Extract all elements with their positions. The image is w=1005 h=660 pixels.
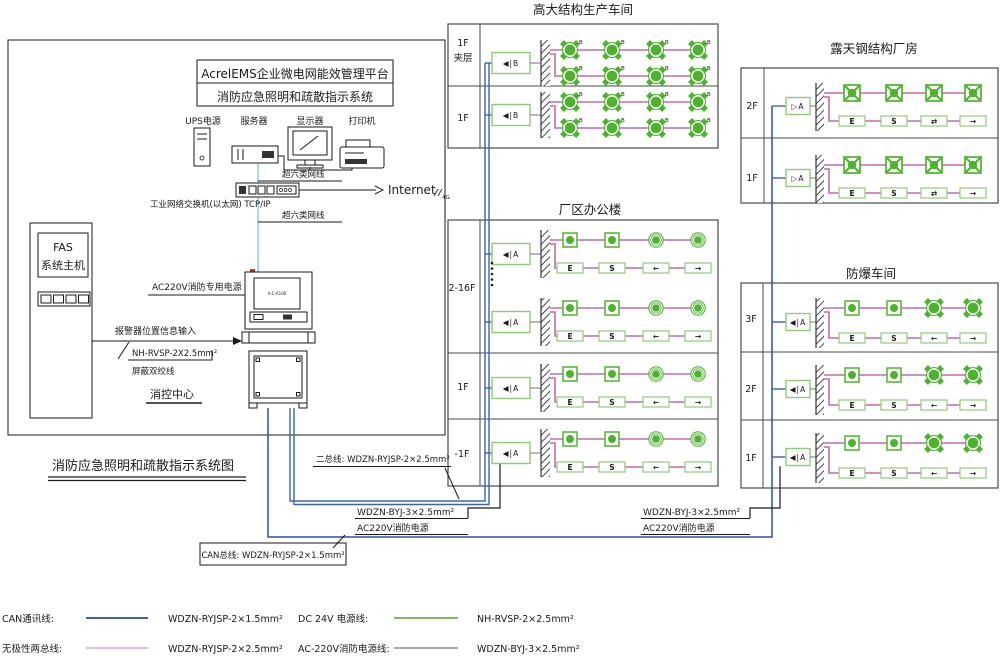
svg-text:1F: 1F [745, 453, 757, 464]
svg-text:→: → [970, 189, 976, 198]
svg-text:B: B [665, 92, 669, 98]
svg-text:▷A: ▷A [792, 174, 805, 183]
emergency-light [563, 367, 577, 381]
emergency-light [649, 367, 663, 381]
svg-text:3F: 3F [745, 314, 757, 325]
alarm-cable-note: 屏蔽双绞线 [132, 366, 175, 377]
svg-text:→: → [695, 264, 701, 273]
svg-text:S: S [891, 469, 896, 478]
can-bus-callout: CAN总线: WDZN-RYJSP-2×1.5mm² [201, 550, 344, 561]
svg-text:B: B [621, 92, 625, 98]
svg-text:←: ← [931, 469, 937, 478]
legend-label-ac220: AC-220V消防电源线: [298, 643, 390, 655]
emergency-light [605, 233, 619, 247]
switch-label: 工业网络交换机(以太网) TCP/IP [150, 199, 271, 210]
svg-text:B: B [579, 40, 583, 46]
wall-hatch [541, 92, 550, 138]
emergency-light [649, 301, 663, 315]
svg-text:◀|A: ◀|A [503, 384, 519, 393]
svg-text:B: B [707, 118, 711, 124]
svg-text:B: B [621, 66, 625, 72]
svg-text:▷A: ▷A [792, 102, 805, 111]
emergency-light [926, 157, 942, 173]
emergency-light [845, 436, 859, 450]
emergency-light [965, 85, 981, 101]
svg-text:E: E [849, 469, 854, 478]
wall-hatch [541, 40, 550, 86]
emergency-light [887, 368, 901, 382]
svg-text:←: ← [931, 401, 937, 410]
emergency-light [562, 120, 578, 136]
svg-text:E: E [567, 264, 572, 273]
emergency-light [845, 368, 859, 382]
svg-text:夹层: 夹层 [453, 52, 472, 64]
emergency-light [965, 300, 981, 316]
emergency-light [648, 42, 664, 58]
legend-label-can: CAN通讯线: [2, 613, 54, 625]
svg-text:B: B [665, 118, 669, 124]
svg-text:◀|B: ◀|B [503, 111, 519, 120]
building-2-title: 露天钢结构厂房 [830, 41, 918, 56]
floor-label: 2-16F [448, 283, 475, 294]
svg-text:1F: 1F [457, 113, 469, 124]
svg-text:S: S [609, 463, 614, 472]
repeat-dots [491, 262, 494, 265]
workstation-cabinet: A-C-A100 [242, 269, 315, 408]
emergency-light [605, 367, 619, 381]
svg-text:←: ← [653, 264, 659, 273]
emergency-light [649, 432, 663, 446]
wall-hatch [541, 364, 550, 412]
emergency-light [691, 432, 705, 446]
emergency-light [690, 120, 706, 136]
emergency-light [562, 94, 578, 110]
emergency-light [690, 94, 706, 110]
fas-line1: FAS [53, 241, 73, 254]
svg-text:S: S [609, 398, 614, 407]
ac220-dedicated-label: AC220V消防专用电源 [152, 281, 242, 293]
emergency-light [690, 68, 706, 84]
svg-text:2-16F: 2-16F [448, 283, 475, 294]
emergency-light [690, 42, 706, 58]
emergency-light [691, 233, 705, 247]
control-room: AcrelEMS企业微电网能效管理平台 消防应急照明和疏散指示系统 UPS电源 … [8, 40, 450, 435]
building-1-title: 厂区办公楼 [559, 202, 622, 217]
svg-text:B: B [579, 66, 583, 72]
svg-text:E: E [849, 401, 854, 410]
building-3-title: 防爆车间 [846, 266, 896, 281]
svg-text:E: E [567, 398, 572, 407]
emergency-light [648, 94, 664, 110]
svg-text:S: S [891, 334, 896, 343]
svg-text:S: S [891, 401, 896, 410]
system-diagram: AcrelEMS企业微电网能效管理平台 消防应急照明和疏散指示系统 UPS电源 … [0, 0, 1005, 660]
svg-text:1F: 1F [746, 173, 758, 184]
floor-label: 3F [745, 314, 757, 325]
legend-spec-dc24: NH-RVSP-2×2.5mm² [477, 614, 574, 625]
server-icon [232, 146, 278, 163]
svg-text:B: B [579, 92, 583, 98]
svg-text:⇄: ⇄ [931, 117, 937, 126]
emergency-light [886, 157, 902, 173]
network-switch-icon [236, 183, 299, 197]
emergency-light [691, 301, 705, 315]
ac-feed-label-left: AC220V消防电源 [357, 522, 429, 534]
svg-text:◀|B: ◀|B [503, 59, 519, 68]
svg-text:-1F: -1F [455, 449, 470, 460]
diagram-title: 消防应急照明和疏散指示系统图 [52, 458, 234, 474]
emergency-light [604, 68, 620, 84]
repeat-dots [491, 273, 494, 276]
emergency-light [926, 300, 942, 316]
svg-text:S: S [891, 117, 896, 126]
svg-text:←: ← [653, 332, 659, 341]
svg-text:B: B [707, 92, 711, 98]
ac-feed-label-right: AC220V消防电源 [643, 522, 715, 534]
svg-text:◀|A: ◀|A [503, 318, 519, 327]
floor-label: 2F [746, 101, 758, 112]
svg-text:B: B [579, 118, 583, 124]
svg-text:B: B [621, 40, 625, 46]
emergency-light [965, 157, 981, 173]
emergency-light [844, 85, 860, 101]
printer-label: 打印机 [348, 115, 375, 127]
svg-text:←: ← [931, 334, 937, 343]
svg-text:◀|A: ◀|A [503, 449, 519, 458]
floor-label: 1F [745, 453, 757, 464]
emergency-light [844, 157, 860, 173]
svg-text:→: → [695, 398, 701, 407]
floor-label: 1F [457, 113, 469, 124]
svg-text:→: → [970, 469, 976, 478]
svg-text:→: → [695, 332, 701, 341]
floor-label: 1F [746, 173, 758, 184]
svg-text:◀|A: ◀|A [790, 385, 806, 394]
emergency-light [604, 42, 620, 58]
svg-text:E: E [567, 463, 572, 472]
emergency-light [926, 367, 942, 383]
ups-icon [194, 128, 210, 166]
emergency-light [965, 367, 981, 383]
svg-text:→: → [695, 463, 701, 472]
fas-host: FAS 系统主机 [30, 223, 92, 418]
emergency-light [563, 301, 577, 315]
emergency-light [604, 120, 620, 136]
svg-text:→: → [970, 401, 976, 410]
svg-text:E: E [849, 334, 854, 343]
svg-text:←: ← [653, 398, 659, 407]
svg-text:←: ← [653, 463, 659, 472]
emergency-light [562, 68, 578, 84]
emergency-light [845, 301, 859, 315]
emergency-light [563, 233, 577, 247]
svg-text:⇄: ⇄ [931, 189, 937, 198]
legend-spec-ac220: WDZN-BYJ-3×2.5mm² [477, 644, 580, 655]
svg-text:1F: 1F [457, 38, 469, 49]
svg-text:E: E [567, 332, 572, 341]
emergency-light [648, 68, 664, 84]
floor-label: -1F [455, 449, 470, 460]
svg-text:S: S [609, 264, 614, 273]
keyboard-tray [242, 332, 315, 343]
svg-text:1F: 1F [457, 382, 469, 393]
wall-hatch [541, 429, 550, 477]
repeat-dots [491, 284, 494, 287]
cat6-top-label: 超六类网线 [282, 169, 325, 180]
emergency-light [604, 94, 620, 110]
ac-feed-cable-right: WDZN-BYJ-3×2.5mm² [643, 508, 741, 518]
legend-spec-can: WDZN-RYJSP-2×1.5mm² [168, 614, 283, 625]
svg-text:◀|A: ◀|A [790, 453, 806, 462]
building-0-title: 高大结构生产车间 [533, 2, 633, 17]
emergency-light [691, 367, 705, 381]
svg-text:B: B [621, 118, 625, 124]
svg-text:E: E [849, 117, 854, 126]
svg-text:2F: 2F [746, 101, 758, 112]
ac-feed-cable-left: WDZN-BYJ-3×2.5mm² [357, 508, 455, 518]
emergency-light [605, 432, 619, 446]
wall-hatch [816, 433, 824, 483]
legend-label-dc24: DC 24V 电源线: [298, 613, 368, 625]
wall-hatch [541, 298, 550, 346]
platform-title-box: AcrelEMS企业微电网能效管理平台 消防应急照明和疏散指示系统 [197, 60, 393, 106]
svg-text:B: B [707, 40, 711, 46]
svg-text:S: S [891, 189, 896, 198]
svg-text:◀|A: ◀|A [790, 318, 806, 327]
repeat-dots [491, 278, 494, 281]
svg-text:S: S [609, 332, 614, 341]
platform-title-line2: 消防应急照明和疏散指示系统 [217, 89, 373, 104]
ups-label: UPS电源 [185, 115, 221, 127]
workstation-screen-label: A-C-A100 [268, 291, 287, 296]
svg-text:B: B [665, 66, 669, 72]
repeat-dots [491, 267, 494, 270]
svg-text:B: B [665, 40, 669, 46]
emergency-light [605, 301, 619, 315]
wall-hatch [541, 230, 550, 278]
wall-hatch [816, 83, 824, 131]
wall-hatch [816, 155, 824, 203]
emergency-light [965, 435, 981, 451]
floor-label: 2F [745, 384, 757, 395]
emergency-light [887, 436, 901, 450]
svg-text:B: B [707, 66, 711, 72]
emergency-light [926, 435, 942, 451]
two-bus-callout: 二总线: WDZN-RYJSP-2×2.5mm² [316, 454, 450, 465]
emergency-light [562, 42, 578, 58]
emergency-light [649, 233, 663, 247]
emergency-light [648, 120, 664, 136]
room-label: 消控中心 [150, 387, 194, 401]
internet-label: Internet [388, 183, 436, 197]
alarm-cable-spec: NH-RVSP-2X2.5mm² [132, 349, 217, 359]
emergency-light [926, 85, 942, 101]
svg-text:E: E [849, 189, 854, 198]
monitor-label: 显示器 [296, 116, 323, 127]
emergency-light [887, 301, 901, 315]
emergency-light [563, 432, 577, 446]
alarm-input-label: 报警器位置信息输入 [115, 325, 196, 337]
wall-hatch [816, 298, 824, 348]
platform-title-line1: AcrelEMS企业微电网能效管理平台 [201, 66, 389, 81]
emergency-light [886, 85, 902, 101]
wall-hatch [816, 365, 824, 415]
svg-text:→: → [970, 334, 976, 343]
svg-text:◀|A: ◀|A [503, 250, 519, 259]
cat6-bottom-label: 超六类网线 [282, 210, 325, 221]
server-label: 服务器 [240, 115, 267, 127]
svg-text:→: → [970, 117, 976, 126]
floor-label: 1F [457, 382, 469, 393]
legend-spec-twobus: WDZN-RYJSP-2×2.5mm² [168, 644, 283, 655]
svg-text:2F: 2F [745, 384, 757, 395]
fas-line2: 系统主机 [41, 258, 85, 272]
svg-text:4G: 4G [442, 195, 450, 201]
legend-label-twobus: 无极性两总线: [2, 643, 62, 655]
